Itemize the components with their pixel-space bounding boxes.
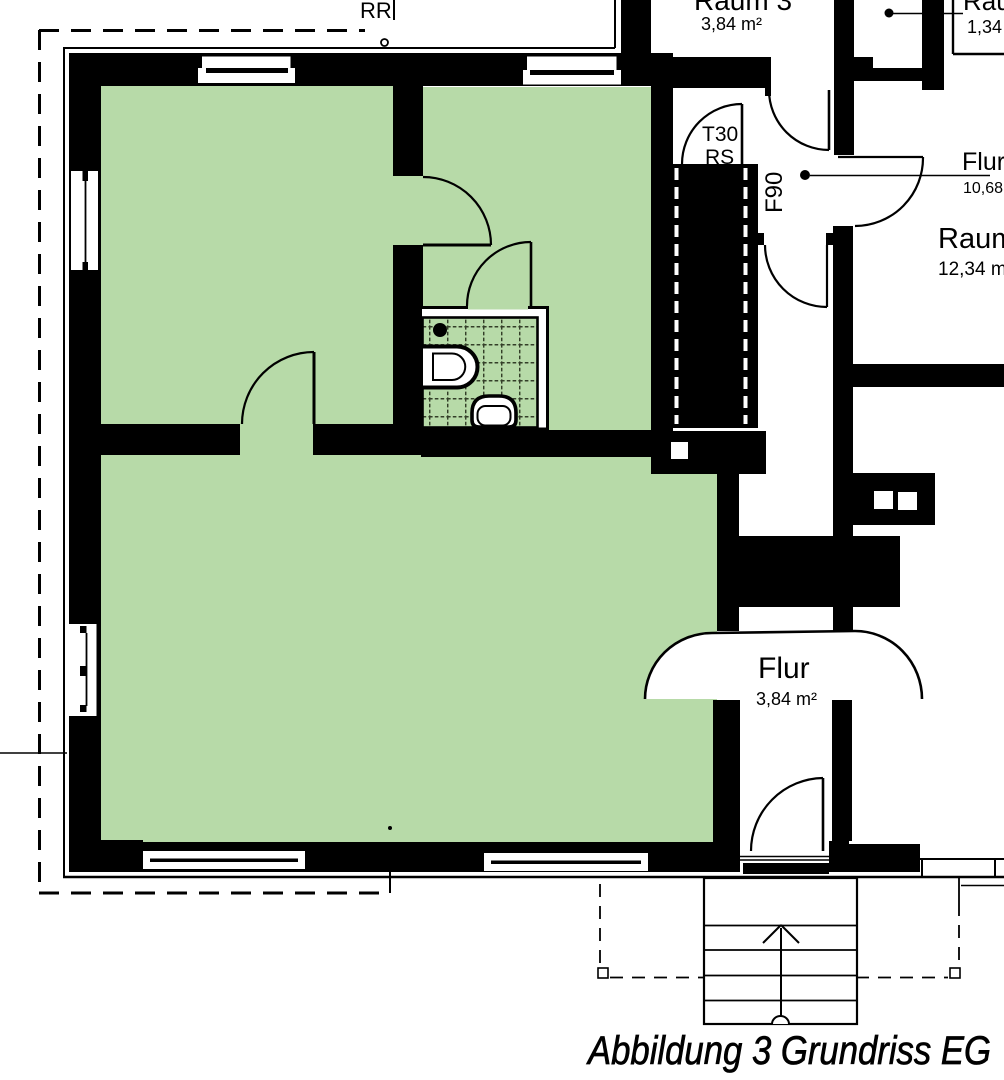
svg-text:RS: RS	[705, 146, 734, 169]
svg-text:T30: T30	[702, 123, 738, 146]
svg-text:3,84 m²: 3,84 m²	[701, 14, 762, 34]
svg-text:RR: RR	[360, 0, 392, 23]
svg-text:12,34 m²: 12,34 m²	[938, 259, 1004, 280]
svg-text:10,68: 10,68	[963, 180, 1003, 197]
svg-text:Raum: Raum	[963, 0, 1004, 16]
svg-text:Raum: Raum	[938, 223, 1004, 255]
svg-text:Flur: Flur	[758, 652, 810, 685]
svg-text:1,34: 1,34	[967, 17, 1002, 37]
svg-text:3,84 m²: 3,84 m²	[756, 689, 817, 709]
svg-text:F90: F90	[761, 172, 788, 213]
svg-text:Flur: Flur	[962, 148, 1004, 176]
svg-text:Abbildung 3 Grundriss EG: Abbildung 3 Grundriss EG	[586, 1029, 991, 1073]
